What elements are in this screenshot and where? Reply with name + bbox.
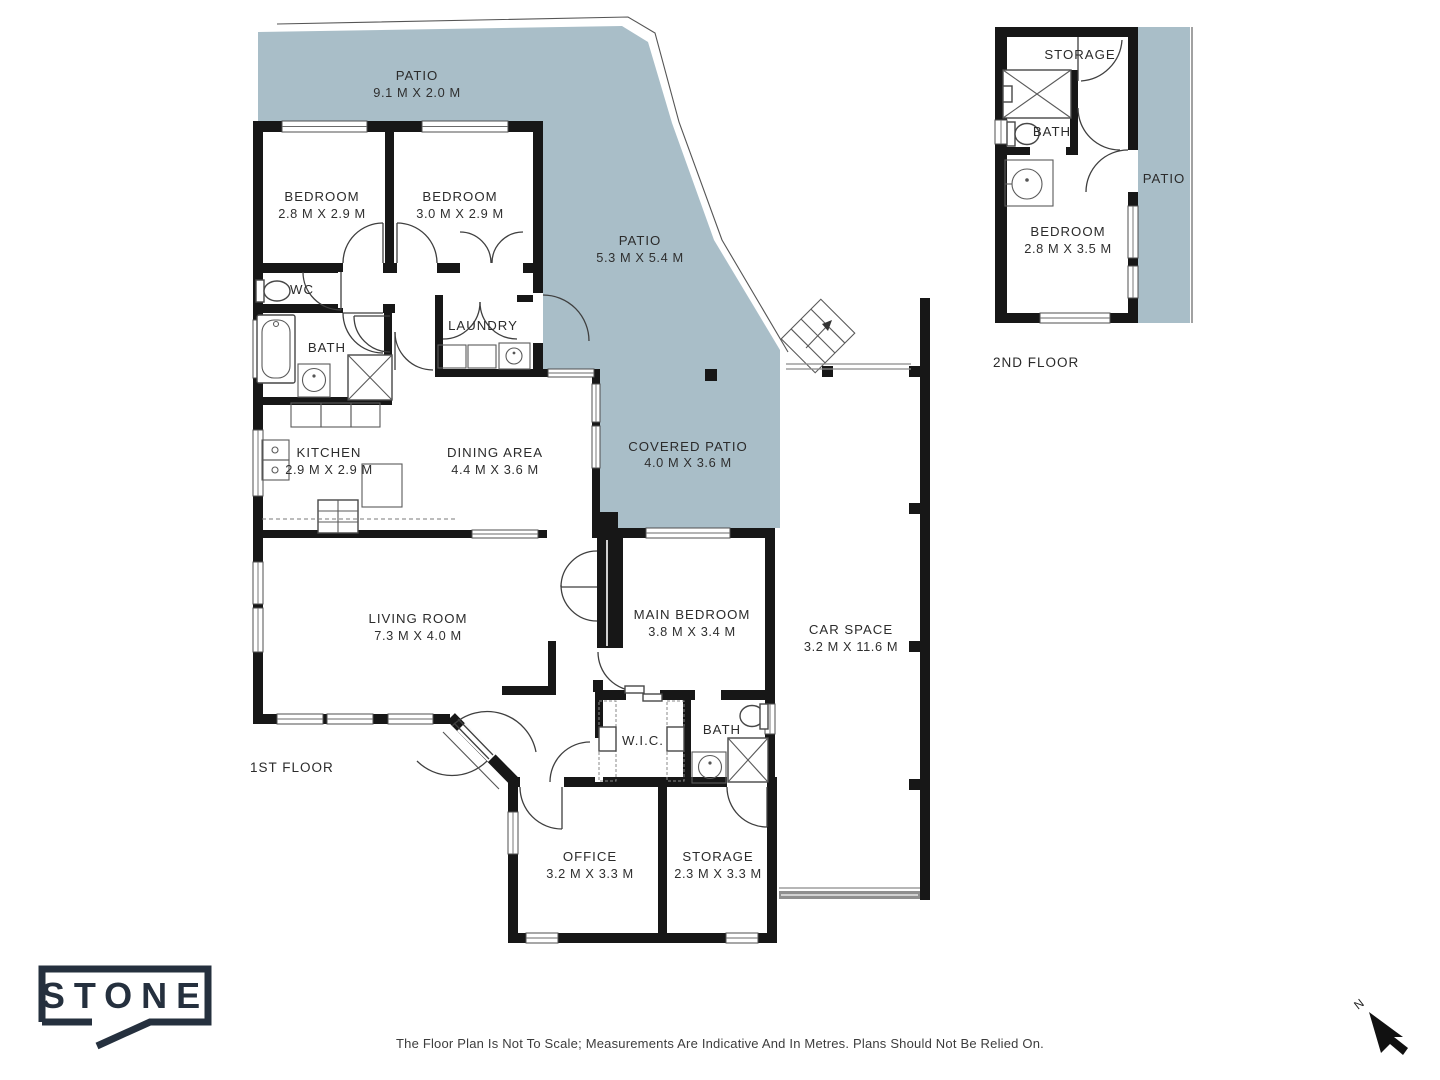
toilet-2f-tank	[1007, 122, 1015, 146]
room-label: CAR SPACE	[809, 622, 893, 637]
room-dims: 2.8 M X 2.9 M	[278, 206, 365, 221]
room-dims: 4.0 M X 3.6 M	[644, 455, 731, 470]
room-dining: DINING AREA 4.4 M X 3.6 M	[447, 445, 543, 477]
room-bedroom-2: BEDROOM 3.0 M X 2.9 M	[416, 189, 503, 221]
kitchen-counter	[321, 403, 351, 427]
room-label: LIVING ROOM	[369, 611, 468, 626]
room-bath-label: BATH	[308, 340, 346, 355]
room-dims: 2.8 M X 3.5 M	[1024, 241, 1111, 256]
room-dims: 2.3 M X 3.3 M	[674, 866, 761, 881]
room-dims: 4.4 M X 3.6 M	[451, 462, 538, 477]
north-compass: N	[1351, 996, 1408, 1055]
shower-2f-fixture	[1003, 86, 1012, 102]
kitchen-counter	[291, 403, 321, 427]
north-arrow-icon	[1369, 1012, 1408, 1055]
room-patio-2f-label: PATIO	[1143, 171, 1186, 186]
compass-north-label: N	[1351, 996, 1366, 1012]
car-space-boundary	[779, 298, 930, 900]
room-storage: STORAGE 2.3 M X 3.3 M	[674, 849, 761, 881]
room-laundry-label: LAUNDRY	[448, 318, 518, 333]
room-label: BEDROOM	[284, 189, 359, 204]
room-dims: 9.1 M X 2.0 M	[373, 85, 460, 100]
room-label: BEDROOM	[422, 189, 497, 204]
logo-text: STONE	[41, 975, 209, 1016]
room-car-space: CAR SPACE 3.2 M X 11.6 M	[804, 622, 898, 654]
bath2-toilet-tank	[760, 704, 768, 729]
room-dims: 3.8 M X 3.4 M	[648, 624, 735, 639]
room-dims: 2.9 M X 2.9 M	[285, 462, 372, 477]
room-dims: 7.3 M X 4.0 M	[374, 628, 461, 643]
agency-logo: STONE	[41, 969, 209, 1046]
room-label: MAIN BEDROOM	[634, 607, 751, 622]
second-floor-label: 2ND FLOOR	[993, 355, 1079, 370]
room-label: KITCHEN	[297, 445, 362, 460]
fixtures-second-floor	[1003, 37, 1128, 206]
room-storage-2f-label: STORAGE	[1044, 47, 1115, 62]
wc-toilet-bowl	[264, 281, 290, 301]
room-dims: 3.2 M X 11.6 M	[804, 639, 898, 654]
bath2-sink	[699, 756, 722, 779]
room-bedroom-2f: BEDROOM 2.8 M X 3.5 M	[1024, 224, 1111, 256]
kitchen-sink	[262, 440, 289, 460]
room-label: BEDROOM	[1030, 224, 1105, 239]
room-dims: 5.3 M X 5.4 M	[596, 250, 683, 265]
kitchen-counter	[351, 403, 380, 427]
sink-2f	[1012, 169, 1042, 199]
room-dims: 3.2 M X 3.3 M	[546, 866, 633, 881]
sliding-door-panel	[643, 694, 662, 701]
room-label: STORAGE	[682, 849, 753, 864]
sliding-door-panel	[625, 686, 644, 693]
room-bath2-label: BATH	[703, 722, 741, 737]
stairs	[781, 299, 855, 373]
wc-toilet-tank	[256, 280, 264, 302]
room-label: PATIO	[396, 68, 439, 83]
room-kitchen: KITCHEN 2.9 M X 2.9 M	[285, 445, 372, 477]
room-office: OFFICE 3.2 M X 3.3 M	[546, 849, 633, 881]
floor-plan-page: PATIO 9.1 M X 2.0 M BEDROOM 2.8 M X 2.9 …	[0, 0, 1440, 1080]
room-living: LIVING ROOM 7.3 M X 4.0 M	[369, 611, 468, 643]
first-floor-label: 1ST FLOOR	[250, 760, 334, 775]
bath-sink	[303, 369, 326, 392]
laundry-cabinet	[468, 345, 496, 368]
room-wc-label: WC	[290, 282, 314, 297]
entry-door-opening	[461, 727, 492, 758]
room-bath-2f-label: BATH	[1033, 124, 1071, 139]
disclaimer-text: The Floor Plan Is Not To Scale; Measurem…	[396, 1036, 1044, 1051]
room-bedroom-1: BEDROOM 2.8 M X 2.9 M	[278, 189, 365, 221]
room-main-bedroom: MAIN BEDROOM 3.8 M X 3.4 M	[634, 607, 751, 639]
room-label: DINING AREA	[447, 445, 543, 460]
bathtub	[257, 315, 295, 383]
room-wic-label: W.I.C.	[622, 733, 664, 748]
room-dims: 3.0 M X 2.9 M	[416, 206, 503, 221]
room-covered-patio: COVERED PATIO 4.0 M X 3.6 M	[628, 439, 748, 470]
laundry-tub	[499, 343, 530, 369]
floor-plan-canvas: PATIO 9.1 M X 2.0 M BEDROOM 2.8 M X 2.9 …	[0, 0, 1440, 1080]
room-label: PATIO	[619, 233, 662, 248]
room-label: OFFICE	[563, 849, 617, 864]
room-label: COVERED PATIO	[628, 439, 748, 454]
